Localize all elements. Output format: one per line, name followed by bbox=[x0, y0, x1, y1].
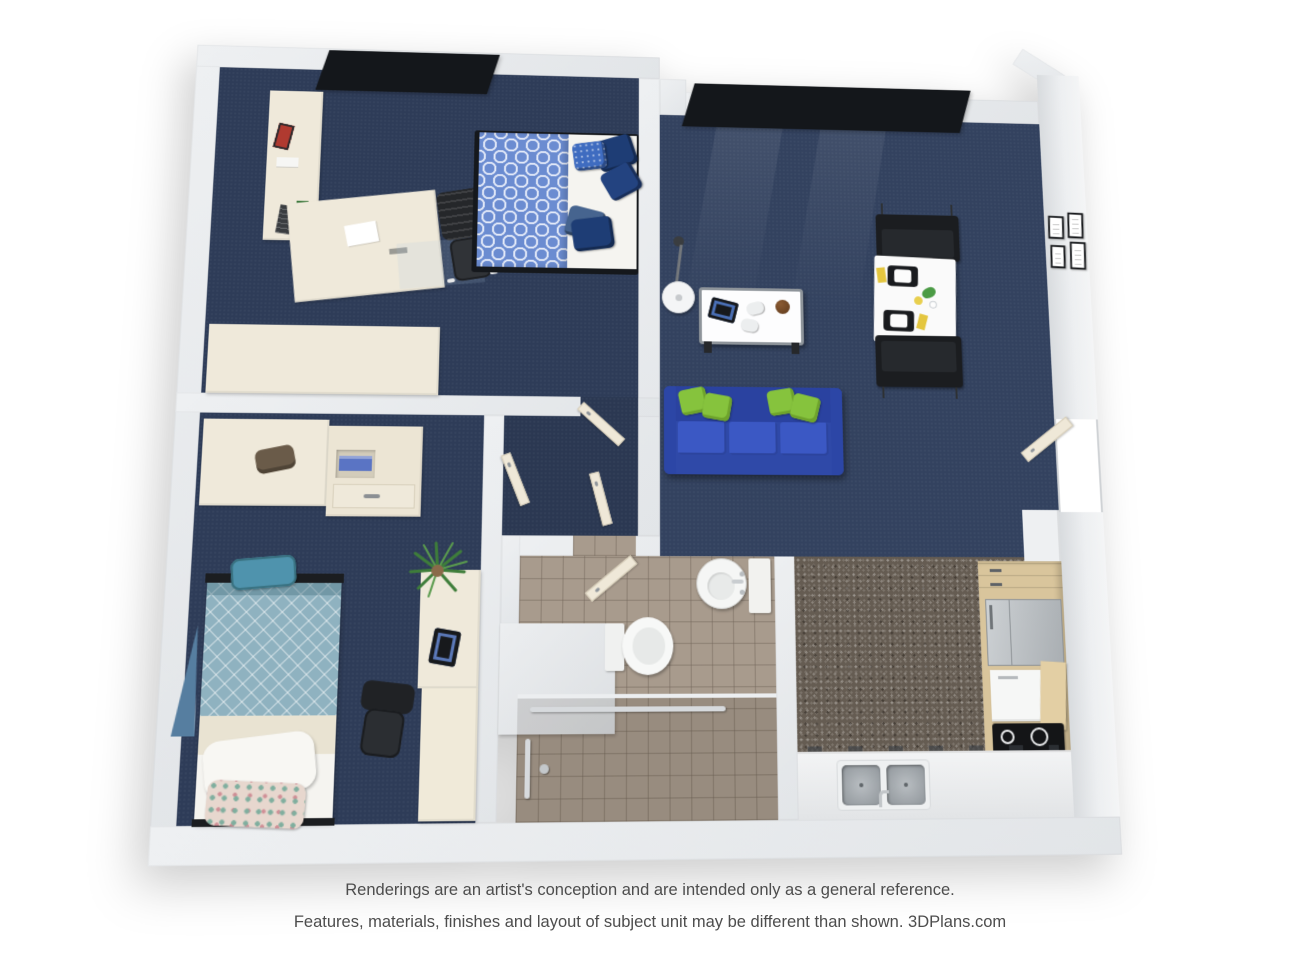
refrigerator bbox=[985, 599, 1065, 666]
bedroom2-desk bbox=[418, 688, 478, 821]
shower-grab-bar-vertical bbox=[524, 739, 530, 799]
drawer-handle bbox=[990, 583, 1002, 586]
cooktop-burner bbox=[1000, 730, 1015, 745]
lamp-shade-center bbox=[675, 294, 682, 301]
art-frame bbox=[1048, 216, 1064, 240]
drawer-handle bbox=[990, 569, 1002, 572]
potted-plant bbox=[403, 537, 471, 603]
chair-seat bbox=[359, 707, 406, 758]
rendering-canvas: Renderings are an artist's conception an… bbox=[0, 0, 1300, 975]
sink-basin bbox=[707, 572, 734, 599]
chair-leg bbox=[955, 387, 957, 398]
bedroom1-bed bbox=[471, 130, 638, 275]
paper-sheet bbox=[344, 220, 379, 246]
toilet bbox=[605, 615, 679, 679]
sofa-seat-cushion bbox=[678, 421, 727, 455]
art-sketch bbox=[1055, 250, 1061, 264]
sink-drain bbox=[859, 783, 863, 787]
dinner-plate bbox=[890, 314, 907, 328]
door-handle bbox=[1030, 448, 1036, 453]
sink-tap bbox=[740, 571, 745, 576]
wall-bathroom-left bbox=[500, 535, 520, 629]
art-frame bbox=[1050, 245, 1065, 269]
duffel-bag-brown bbox=[254, 444, 297, 475]
dining-chair bbox=[875, 335, 963, 387]
art-sketch bbox=[1053, 220, 1060, 234]
wall-connector-top bbox=[660, 79, 687, 116]
pedestal-sink bbox=[696, 558, 747, 609]
chair-leg bbox=[881, 203, 883, 214]
cabinet-drawers bbox=[978, 561, 1064, 599]
sink-faucet bbox=[732, 580, 744, 584]
sink-tap bbox=[740, 590, 745, 595]
basketball bbox=[775, 300, 790, 314]
bed-pillow-navy bbox=[570, 216, 615, 252]
dining-table bbox=[874, 255, 956, 345]
chair-leg bbox=[882, 387, 884, 399]
wall-bedroom1-right bbox=[638, 78, 660, 536]
bed-pillow-pattern bbox=[571, 140, 607, 171]
disclaimer-line-1: Renderings are an artist's conception an… bbox=[0, 874, 1300, 906]
kitchen-side-panel bbox=[1022, 510, 1061, 561]
chair-leg bbox=[950, 205, 952, 216]
green-throw-pillow bbox=[701, 392, 732, 422]
cooktop-burner bbox=[1030, 727, 1049, 746]
lamp-stem bbox=[675, 245, 683, 286]
wall-art-grid bbox=[1047, 212, 1092, 328]
game-controller bbox=[745, 300, 765, 316]
floor-lamp bbox=[660, 236, 699, 316]
bedroom2-wardrobe bbox=[199, 419, 330, 507]
kitchen-faucet bbox=[879, 790, 890, 807]
centerpiece-plant bbox=[920, 286, 937, 300]
cabinet-front-handles bbox=[808, 745, 1059, 752]
double-sink bbox=[836, 759, 931, 811]
dining-chair bbox=[875, 214, 960, 262]
wood-panel bbox=[1040, 661, 1066, 730]
napkin-yellow bbox=[916, 314, 928, 331]
chair-seat bbox=[882, 229, 955, 258]
book-red bbox=[273, 123, 295, 151]
sofa-seat-cushion bbox=[780, 422, 829, 456]
bathroom-door-opening bbox=[573, 536, 636, 556]
disclaimer: Renderings are an artist's conception an… bbox=[0, 874, 1300, 938]
bathroom-side-cabinet bbox=[748, 558, 771, 613]
centerpiece-glass bbox=[929, 301, 937, 309]
sofa-armrest bbox=[830, 388, 844, 475]
toilet-seat bbox=[632, 627, 665, 664]
living-room-window bbox=[682, 83, 971, 133]
door-handle bbox=[586, 411, 592, 416]
door-handle bbox=[595, 587, 601, 593]
art-sketch bbox=[1075, 246, 1082, 265]
bedroom2-dresser-open bbox=[326, 426, 424, 517]
appliance-handle bbox=[998, 676, 1018, 679]
art-frame bbox=[1070, 242, 1086, 270]
napkin-yellow bbox=[876, 267, 887, 283]
sink-drain bbox=[904, 783, 908, 787]
sofa-armrest bbox=[664, 386, 676, 474]
floor-plan bbox=[148, 45, 1138, 867]
art-sketch bbox=[1072, 217, 1079, 234]
bed-duvet-blue bbox=[476, 132, 568, 268]
bedroom2-bed bbox=[194, 578, 342, 824]
table-leg bbox=[704, 341, 712, 353]
shower-area bbox=[516, 693, 779, 822]
bedroom1-window bbox=[315, 50, 500, 94]
bed-duvet-teal bbox=[200, 583, 342, 716]
door-handle bbox=[594, 481, 598, 487]
tablet bbox=[428, 628, 462, 668]
disclaimer-line-2: Features, materials, finishes and layout… bbox=[0, 906, 1300, 938]
dinner-plate bbox=[894, 269, 911, 283]
folded-clothes-blue bbox=[339, 456, 372, 471]
tablet bbox=[707, 297, 738, 324]
art-frame bbox=[1067, 212, 1083, 238]
bedroom1-closet-block bbox=[205, 324, 440, 395]
chair-seat bbox=[881, 341, 957, 372]
bed-pillow-floral bbox=[204, 779, 308, 829]
drawer-handle bbox=[363, 494, 380, 498]
chair-foot bbox=[447, 278, 455, 283]
shower-grab-bar bbox=[530, 706, 726, 712]
teal-bag bbox=[230, 554, 296, 590]
centerpiece-lemon bbox=[914, 296, 923, 305]
table-leg bbox=[791, 343, 799, 355]
book-stack-white bbox=[276, 157, 298, 167]
game-controller bbox=[740, 318, 759, 333]
sofa-seat-cushion bbox=[729, 422, 778, 456]
door-handle bbox=[507, 462, 512, 468]
sofa bbox=[664, 386, 844, 475]
kitchen-counter bbox=[798, 750, 1075, 820]
coffee-table bbox=[699, 287, 804, 345]
